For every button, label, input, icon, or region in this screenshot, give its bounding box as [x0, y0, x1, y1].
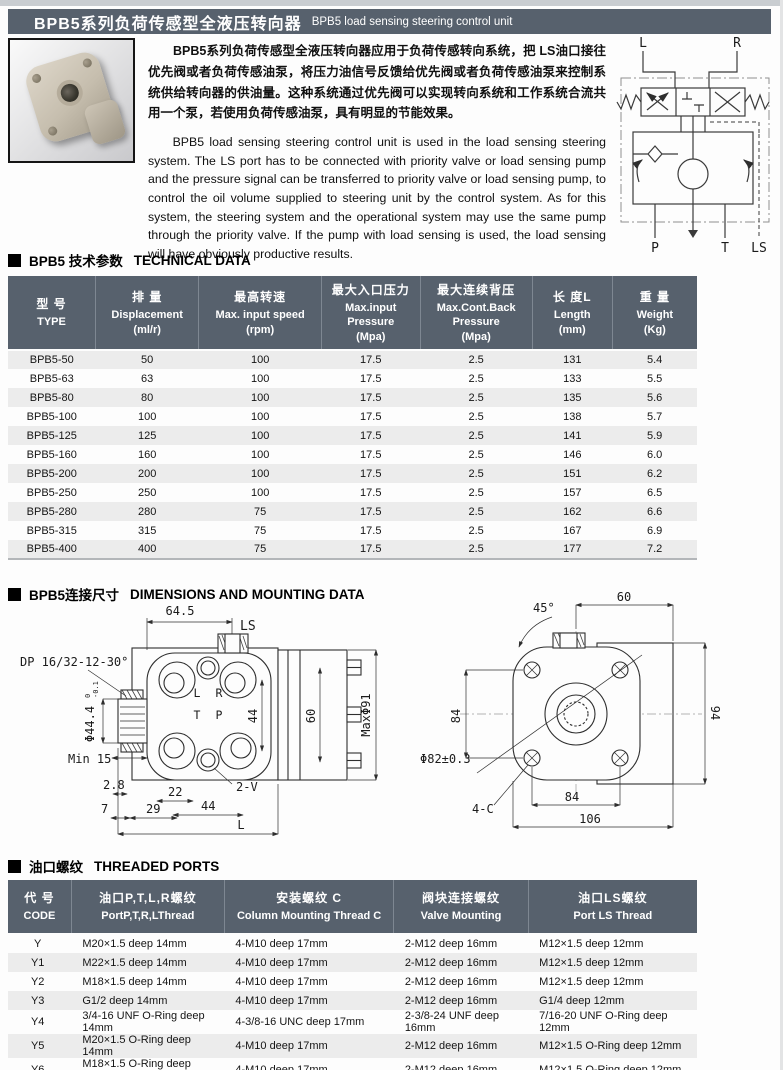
dim-label: 22: [168, 785, 182, 799]
table-cell: 6.2: [612, 464, 697, 483]
table-cell: 315: [96, 521, 199, 540]
table-cell: 100: [199, 388, 322, 407]
table-cell: 100: [199, 464, 322, 483]
table-cell: 2.5: [420, 426, 532, 445]
table-cell: 100: [199, 369, 322, 388]
table-cell: 100: [199, 426, 322, 445]
table-cell: 100: [199, 483, 322, 502]
table-cell: 141: [532, 426, 612, 445]
table-cell: M18×1.5 deep 14mm: [71, 972, 224, 991]
column-header: 阀块连接螺纹Valve Mounting: [394, 880, 528, 934]
table-cell: 5.6: [612, 388, 697, 407]
table-cell: 157: [532, 483, 612, 502]
table-cell: 2-M12 deep 16mm: [394, 934, 528, 953]
dimension-drawing-side-view: 64.5 LS L R T P Φ44.4 0 -0.1: [8, 598, 398, 843]
table-cell: 5.7: [612, 407, 697, 426]
table-cell: 162: [532, 502, 612, 521]
table-cell: 3/4-16 UNF O-Ring deep 14mm: [71, 1010, 224, 1034]
table-cell: 6.0: [612, 445, 697, 464]
schematic-port-L-label: L: [639, 36, 647, 51]
dim-label: 84: [565, 790, 579, 804]
table-cell: 63: [96, 369, 199, 388]
table-cell: 75: [199, 521, 322, 540]
table-cell: 2.5: [420, 540, 532, 559]
table-row: BPB5-4004007517.52.51777.2: [8, 540, 697, 559]
section-title-en: TECHNICAL DATA: [134, 253, 251, 268]
section-bullet-icon: [8, 254, 21, 267]
dim-label: L: [237, 818, 244, 832]
section-title-zh: 油口螺纹: [29, 856, 83, 876]
table-cell: 138: [532, 407, 612, 426]
table-row: Y5M20×1.5 O-Ring deep 14mm4-M10 deep 17m…: [8, 1034, 697, 1058]
table-cell: 160: [96, 445, 199, 464]
dim-label: 64.5: [166, 604, 195, 618]
column-header: 重 量Weight(Kg): [612, 276, 697, 350]
section-title-zh: BPB5 技术参数: [29, 250, 123, 270]
dim-label: 84: [449, 709, 463, 723]
table-cell: M22×1.5 deep 14mm: [71, 953, 224, 972]
table-cell: 4-M10 deep 17mm: [224, 953, 393, 972]
table-cell: 17.5: [321, 388, 420, 407]
column-header: 最高转速Max. input speed(rpm): [199, 276, 322, 350]
table-cell: M18×1.5 O-Ring deep 14mm: [71, 1058, 224, 1070]
section-threaded-ports: 油口螺纹 THREADED PORTS: [8, 856, 219, 876]
table-cell: Y4: [8, 1010, 71, 1034]
table-cell: 4-M10 deep 17mm: [224, 1058, 393, 1070]
datasheet-page: BPB5系列负荷传感型全液压转向器 BPB5 load sensing stee…: [0, 0, 783, 1070]
table-row: BPB5-25025010017.52.51576.5: [8, 483, 697, 502]
dim-label: 106: [579, 812, 601, 826]
table-cell: 17.5: [321, 483, 420, 502]
table-row: Y43/4-16 UNF O-Ring deep 14mm4-3/8-16 UN…: [8, 1010, 697, 1034]
schematic-port-R-label: R: [733, 36, 741, 51]
dim-tolerance-upper: 0: [84, 694, 92, 698]
table-row: BPB5-505010017.52.51315.4: [8, 350, 697, 369]
table-cell: Y3: [8, 991, 71, 1010]
hydraulic-circuit-diagram: L R P T LS: [609, 34, 781, 258]
table-cell: 2.5: [420, 464, 532, 483]
table-cell: 151: [532, 464, 612, 483]
table-cell: 6.9: [612, 521, 697, 540]
page-title-zh: BPB5系列负荷传感型全液压转向器: [34, 10, 302, 34]
schematic-port-P-label: P: [651, 241, 659, 256]
page-top-strip: [0, 0, 780, 6]
table-cell: 400: [96, 540, 199, 559]
table-cell: BPB5-315: [8, 521, 96, 540]
table-cell: 2.5: [420, 407, 532, 426]
schematic-port-LS-label: LS: [751, 241, 767, 256]
table-cell: 133: [532, 369, 612, 388]
column-header: 安装螺纹 CColumn Mounting Thread C: [224, 880, 393, 934]
table-cell: 280: [96, 502, 199, 521]
dim-label: 4-C: [472, 802, 494, 816]
dim-label: Φ44.4: [83, 706, 97, 742]
dim-label: 2-V: [236, 780, 258, 794]
table-cell: BPB5-100: [8, 407, 96, 426]
table-cell: BPB5-280: [8, 502, 96, 521]
table-cell: 177: [532, 540, 612, 559]
table-cell: M12×1.5 deep 12mm: [528, 934, 697, 953]
column-header: 长 度LLength(mm): [532, 276, 612, 350]
threaded-ports-table: 代 号CODE油口P,T,L,R螺纹PortP,T,R,LThread安装螺纹 …: [8, 880, 697, 1070]
port-face-label-L: L: [194, 686, 201, 700]
table-cell: 146: [532, 445, 612, 464]
table-cell: M20×1.5 deep 14mm: [71, 934, 224, 953]
dim-label: 45°: [533, 601, 555, 615]
table-row: BPB5-636310017.52.51335.5: [8, 369, 697, 388]
table-cell: 135: [532, 388, 612, 407]
table-cell: 2.5: [420, 350, 532, 369]
table-cell: 4-M10 deep 17mm: [224, 934, 393, 953]
table-row: BPB5-16016010017.52.51466.0: [8, 445, 697, 464]
table-cell: 17.5: [321, 502, 420, 521]
dim-label: 7: [101, 802, 108, 816]
table-row: Y6M18×1.5 O-Ring deep 14mm4-M10 deep 17m…: [8, 1058, 697, 1070]
section-bullet-icon: [8, 860, 21, 873]
schematic-port-T-label: T: [721, 241, 729, 256]
table-cell: M12×1.5 O-Ring deep 12mm: [528, 1058, 697, 1070]
table-cell: 75: [199, 540, 322, 559]
table-cell: 5.4: [612, 350, 697, 369]
table-cell: 100: [199, 445, 322, 464]
table-cell: G1/4 deep 12mm: [528, 991, 697, 1010]
table-cell: 2-M12 deep 16mm: [394, 972, 528, 991]
pump-bolt: [47, 125, 58, 136]
table-cell: Y2: [8, 972, 71, 991]
table-cell: Y: [8, 934, 71, 953]
table-row: BPB5-3153157517.52.51676.9: [8, 521, 697, 540]
port-face-label-P: P: [216, 708, 223, 722]
column-header: 油口P,T,L,R螺纹PortP,T,R,LThread: [71, 880, 224, 934]
table-row: Y3G1/2 deep 14mm4-M10 deep 17mm2-M12 dee…: [8, 991, 697, 1010]
table-cell: 2.5: [420, 388, 532, 407]
table-cell: 2.5: [420, 521, 532, 540]
table-cell: 5.5: [612, 369, 697, 388]
table-cell: 4-M10 deep 17mm: [224, 991, 393, 1010]
table-cell: BPB5-200: [8, 464, 96, 483]
table-cell: 200: [96, 464, 199, 483]
table-cell: 4-M10 deep 17mm: [224, 1034, 393, 1058]
table-cell: 6.5: [612, 483, 697, 502]
table-row: BPB5-808010017.52.51355.6: [8, 388, 697, 407]
table-cell: 2.5: [420, 445, 532, 464]
technical-data-table: 型 号TYPE排 量Displacement(ml/r)最高转速Max. inp…: [8, 276, 697, 560]
dim-label: MaxΦ91: [359, 693, 373, 736]
dim-label: Min 15: [68, 752, 111, 766]
table-row: BPB5-12512510017.52.51415.9: [8, 426, 697, 445]
table-cell: 7/16-20 UNF O-Ring deep 12mm: [528, 1010, 697, 1034]
table-cell: 4-3/8-16 UNC deep 17mm: [224, 1010, 393, 1034]
table-cell: 100: [199, 407, 322, 426]
table-cell: 250: [96, 483, 199, 502]
table-cell: 17.5: [321, 407, 420, 426]
port-face-label-T: T: [194, 708, 201, 722]
dim-label: 60: [617, 590, 631, 604]
table-cell: 7.2: [612, 540, 697, 559]
table-cell: 2-M12 deep 16mm: [394, 1034, 528, 1058]
pump-shaft-hole: [54, 77, 86, 109]
table-cell: BPB5-250: [8, 483, 96, 502]
dim-label: Φ82±0.3: [420, 752, 471, 766]
table-row: Y2M18×1.5 deep 14mm4-M10 deep 17mm2-M12 …: [8, 972, 697, 991]
port-face-label-R: R: [216, 686, 223, 700]
intro-text-block: BPB5系列负荷传感型全液压转向器应用于负荷传感转向系统，把 LS油口接往优先阀…: [148, 41, 606, 264]
table-cell: 100: [96, 407, 199, 426]
dim-label: 94: [708, 706, 722, 720]
table-row: YM20×1.5 deep 14mm4-M10 deep 17mm2-M12 d…: [8, 934, 697, 953]
table-cell: 17.5: [321, 521, 420, 540]
intro-paragraph-zh: BPB5系列负荷传感型全液压转向器应用于负荷传感转向系统，把 LS油口接往优先阀…: [148, 41, 606, 124]
column-header: 排 量Displacement(ml/r): [96, 276, 199, 350]
table-cell: Y6: [8, 1058, 71, 1070]
column-header: 代 号CODE: [8, 880, 71, 934]
table-cell: BPB5-63: [8, 369, 96, 388]
table-cell: M12×1.5 O-Ring deep 12mm: [528, 1034, 697, 1058]
table-cell: Y1: [8, 953, 71, 972]
table-cell: 17.5: [321, 540, 420, 559]
table-cell: M12×1.5 deep 12mm: [528, 972, 697, 991]
table-cell: BPB5-80: [8, 388, 96, 407]
table-cell: 80: [96, 388, 199, 407]
dim-label: LS: [240, 619, 256, 634]
table-row: Y1M22×1.5 deep 14mm4-M10 deep 17mm2-M12 …: [8, 953, 697, 972]
table-cell: 2.5: [420, 502, 532, 521]
column-header: 油口LS螺纹Port LS Thread: [528, 880, 697, 934]
table-cell: 2-M12 deep 16mm: [394, 953, 528, 972]
table-row: BPB5-10010010017.52.51385.7: [8, 407, 697, 426]
table-cell: BPB5-125: [8, 426, 96, 445]
dim-label: 2.8: [103, 778, 125, 792]
pump-bolt: [31, 73, 42, 84]
table-cell: 2-M12 deep 16mm: [394, 1058, 528, 1070]
product-photo: [8, 38, 135, 163]
table-cell: M20×1.5 O-Ring deep 14mm: [71, 1034, 224, 1058]
table-cell: 17.5: [321, 369, 420, 388]
table-row: BPB5-2802807517.52.51626.6: [8, 502, 697, 521]
dim-label: 60: [304, 709, 318, 723]
section-technical-data: BPB5 技术参数 TECHNICAL DATA: [8, 250, 251, 270]
column-header: 型 号TYPE: [8, 276, 96, 350]
table-cell: 4-M10 deep 17mm: [224, 972, 393, 991]
table-cell: 75: [199, 502, 322, 521]
pump-bolt: [82, 57, 93, 68]
table-cell: 2.5: [420, 369, 532, 388]
table-cell: 2-3/8-24 UNF deep 16mm: [394, 1010, 528, 1034]
dimension-drawing-front-view: Φ82±0.3 45° 60 84 4-C 84 106 94: [402, 593, 777, 845]
spline-callout: DP 16/32-12-30°: [20, 655, 128, 669]
intro-paragraph-en: BPB5 load sensing steering control unit …: [148, 133, 606, 264]
table-cell: 131: [532, 350, 612, 369]
table-cell: BPB5-160: [8, 445, 96, 464]
dim-label: 44: [201, 799, 215, 813]
dim-label: 29: [146, 802, 160, 816]
page-title-bar: BPB5系列负荷传感型全液压转向器 BPB5 load sensing stee…: [8, 9, 771, 34]
table-cell: 17.5: [321, 426, 420, 445]
table-header-row: 代 号CODE油口P,T,L,R螺纹PortP,T,R,LThread安装螺纹 …: [8, 880, 697, 934]
pump-side-lug: [83, 98, 127, 146]
table-cell: 17.5: [321, 464, 420, 483]
table-header-row: 型 号TYPE排 量Displacement(ml/r)最高转速Max. inp…: [8, 276, 697, 350]
table-cell: Y5: [8, 1034, 71, 1058]
table-cell: M12×1.5 deep 12mm: [528, 953, 697, 972]
table-cell: 2.5: [420, 483, 532, 502]
table-cell: 125: [96, 426, 199, 445]
table-cell: 17.5: [321, 445, 420, 464]
table-cell: 5.9: [612, 426, 697, 445]
table-cell: BPB5-400: [8, 540, 96, 559]
table-row: BPB5-20020010017.52.51516.2: [8, 464, 697, 483]
dim-tolerance-lower: -0.1: [92, 681, 100, 698]
table-cell: 6.6: [612, 502, 697, 521]
column-header: 最大连续背压Max.Cont.BackPressure(Mpa): [420, 276, 532, 350]
table-cell: BPB5-50: [8, 350, 96, 369]
section-title-en: THREADED PORTS: [94, 859, 219, 874]
dim-label: 44: [246, 709, 260, 723]
table-cell: 100: [199, 350, 322, 369]
table-cell: 17.5: [321, 350, 420, 369]
table-cell: 50: [96, 350, 199, 369]
page-title-en: BPB5 load sensing steering control unit: [312, 16, 513, 28]
column-header: 最大入口压力Max.inputPressure(Mpa): [321, 276, 420, 350]
table-cell: G1/2 deep 14mm: [71, 991, 224, 1010]
table-cell: 2-M12 deep 16mm: [394, 991, 528, 1010]
table-cell: 167: [532, 521, 612, 540]
